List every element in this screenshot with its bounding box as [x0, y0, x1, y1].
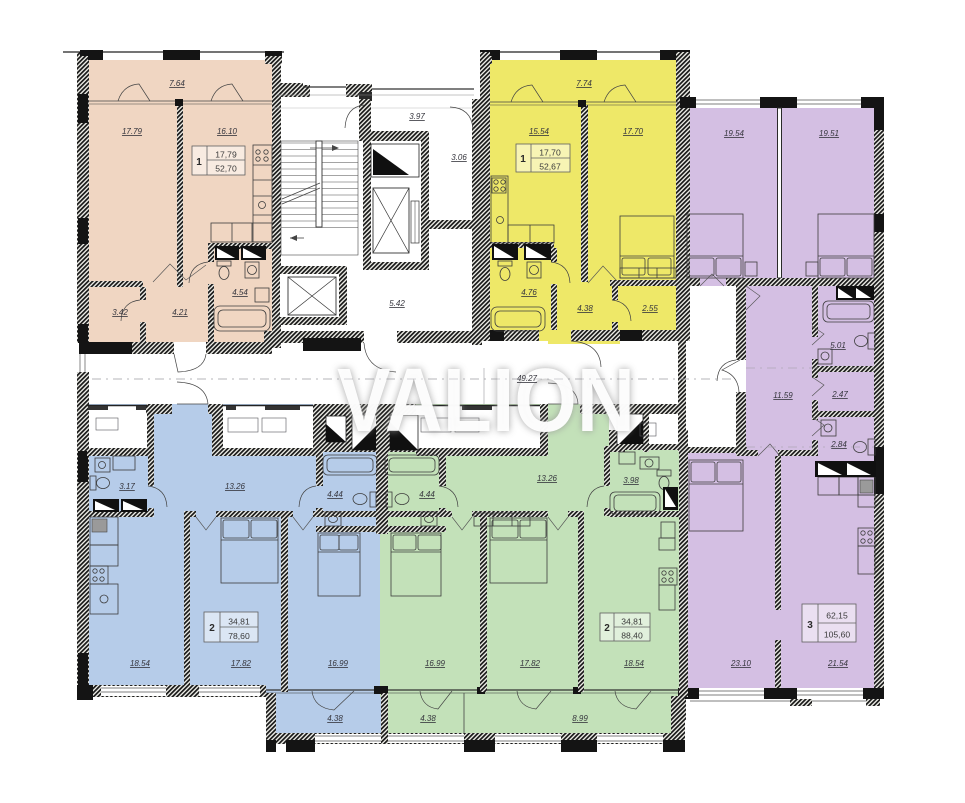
svg-text:17.82: 17.82: [520, 659, 541, 668]
svg-text:18.54: 18.54: [624, 659, 645, 668]
svg-text:2: 2: [209, 623, 215, 634]
svg-text:13.26: 13.26: [537, 474, 558, 483]
svg-text:2.47: 2.47: [831, 390, 848, 399]
svg-text:16.99: 16.99: [328, 659, 349, 668]
svg-text:1: 1: [196, 157, 202, 168]
svg-text:4.44: 4.44: [419, 490, 435, 499]
svg-text:3.06: 3.06: [451, 153, 467, 162]
svg-text:3.17: 3.17: [119, 482, 135, 491]
svg-text:18.54: 18.54: [130, 659, 151, 668]
svg-text:2.55: 2.55: [641, 304, 658, 313]
svg-text:5.42: 5.42: [389, 299, 405, 308]
svg-text:52,70: 52,70: [215, 164, 237, 174]
svg-text:7.64: 7.64: [169, 79, 185, 88]
svg-text:16.10: 16.10: [217, 127, 238, 136]
svg-text:3.98: 3.98: [623, 476, 639, 485]
svg-text:3.42: 3.42: [112, 308, 128, 317]
svg-text:19.54: 19.54: [724, 129, 745, 138]
svg-text:52,67: 52,67: [539, 162, 561, 172]
svg-text:11.59: 11.59: [773, 391, 793, 400]
svg-text:88,40: 88,40: [621, 631, 643, 641]
svg-text:17.70: 17.70: [623, 127, 644, 136]
svg-text:4.44: 4.44: [327, 490, 343, 499]
svg-text:3: 3: [807, 620, 813, 631]
svg-text:16.99: 16.99: [425, 659, 446, 668]
svg-text:19.51: 19.51: [819, 129, 839, 138]
svg-text:3.97: 3.97: [409, 112, 425, 121]
svg-text:VALION: VALION: [337, 351, 635, 451]
svg-text:34,81: 34,81: [621, 617, 643, 627]
svg-text:5.01: 5.01: [830, 341, 846, 350]
svg-text:105,60: 105,60: [824, 630, 851, 640]
svg-text:4.54: 4.54: [232, 288, 248, 297]
svg-text:21.54: 21.54: [827, 659, 849, 668]
svg-text:15.54: 15.54: [529, 127, 550, 136]
svg-text:49.27: 49.27: [517, 374, 538, 383]
svg-text:2.84: 2.84: [830, 440, 847, 449]
svg-text:13.26: 13.26: [225, 482, 246, 491]
svg-text:78,60: 78,60: [228, 631, 250, 641]
svg-text:7.74: 7.74: [576, 79, 592, 88]
svg-text:62,15: 62,15: [826, 611, 848, 621]
svg-text:8.99: 8.99: [572, 714, 588, 723]
svg-text:34,81: 34,81: [228, 617, 250, 627]
svg-text:17.82: 17.82: [231, 659, 252, 668]
svg-text:4.76: 4.76: [521, 288, 537, 297]
svg-text:17,70: 17,70: [539, 148, 561, 158]
svg-text:23.10: 23.10: [730, 659, 752, 668]
svg-text:4.38: 4.38: [420, 714, 436, 723]
svg-text:4.38: 4.38: [577, 304, 593, 313]
svg-text:17.79: 17.79: [122, 127, 143, 136]
svg-text:2: 2: [604, 623, 610, 634]
svg-text:4.38: 4.38: [327, 714, 343, 723]
svg-text:1: 1: [520, 154, 526, 165]
svg-text:17,79: 17,79: [215, 150, 237, 160]
svg-text:4.21: 4.21: [172, 308, 188, 317]
